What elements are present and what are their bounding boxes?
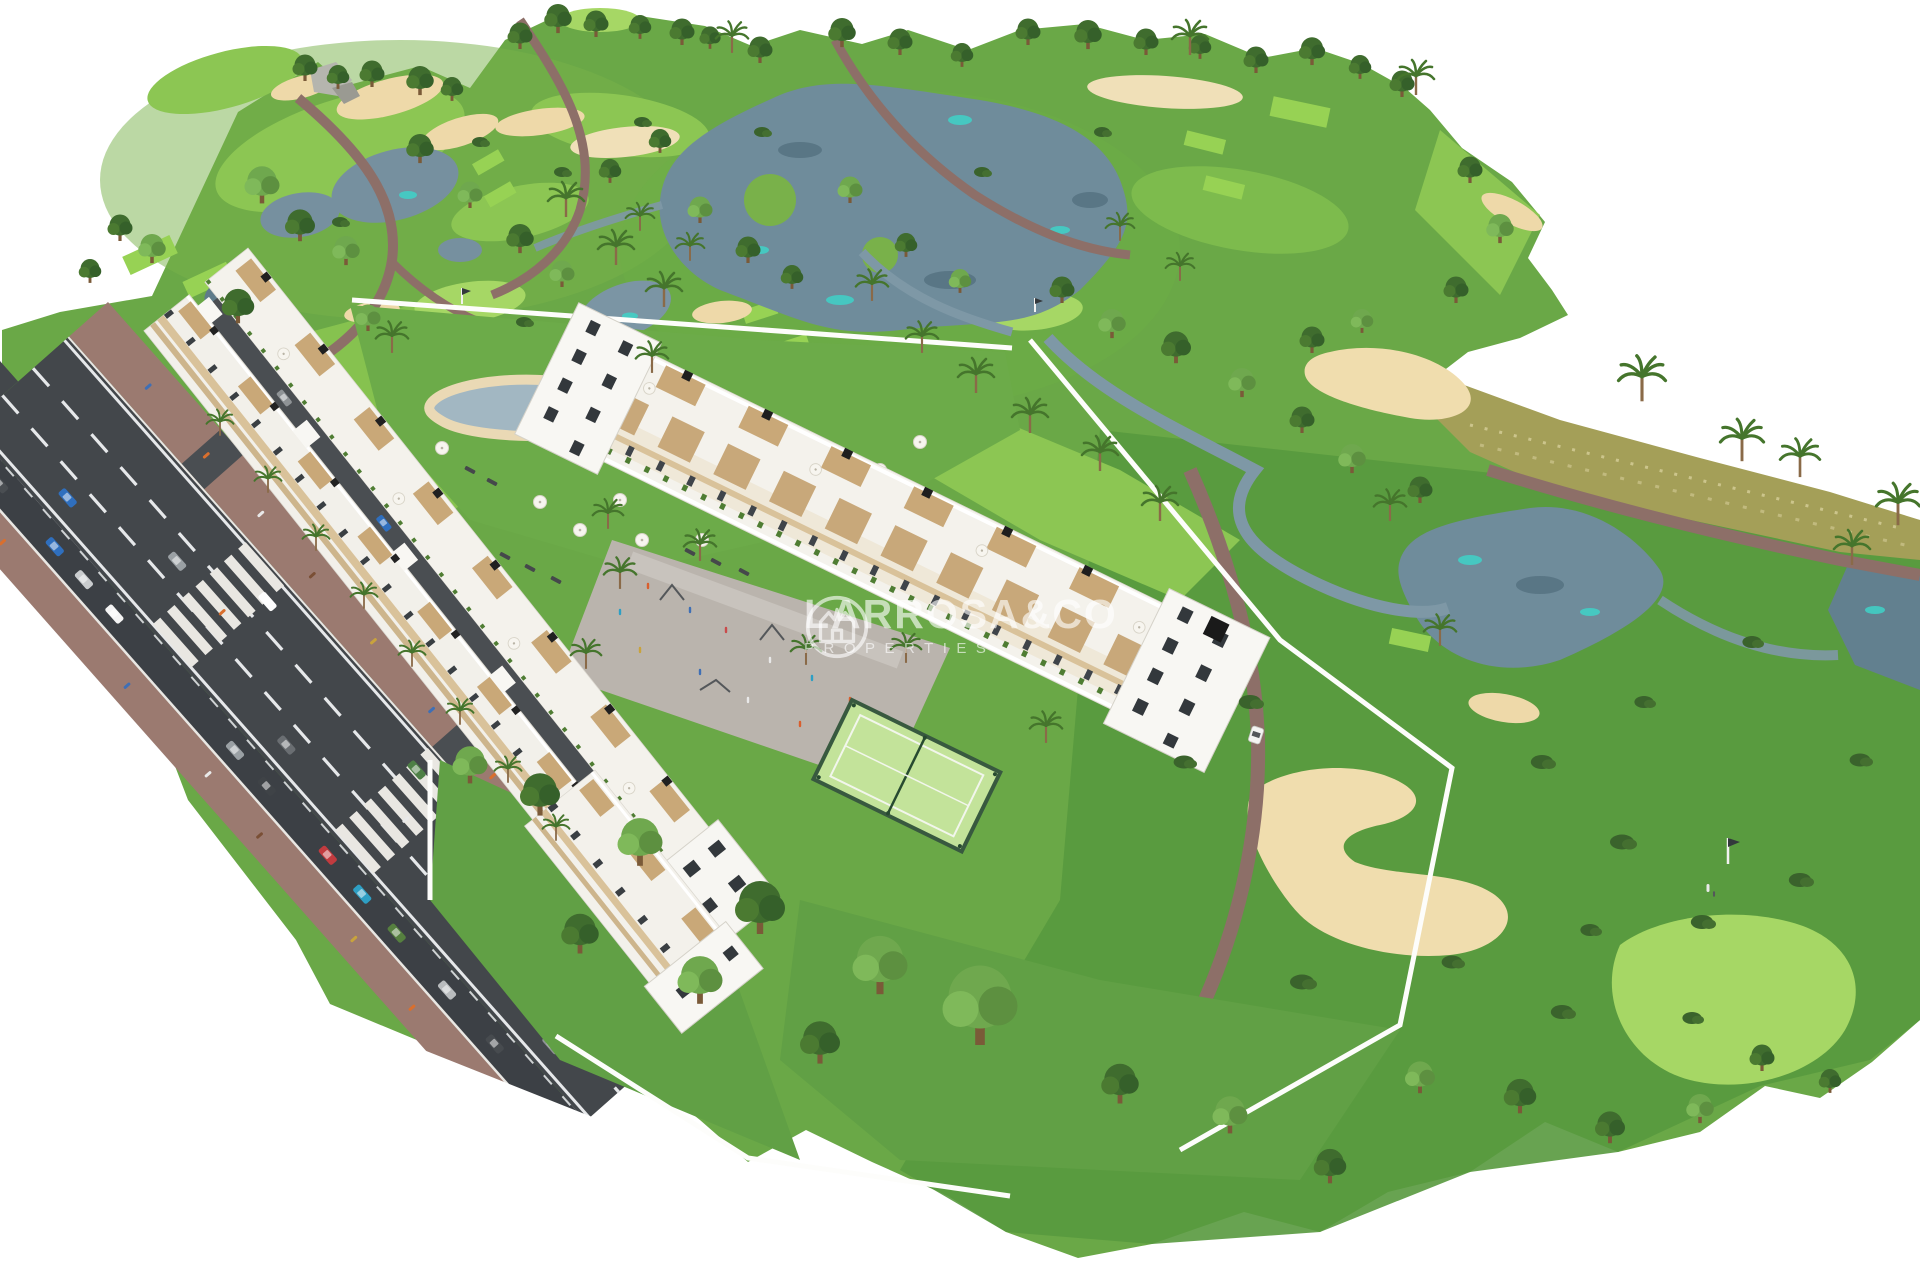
aerial-render [0, 0, 1920, 1280]
render-canvas: LARROSA&CO PROPERTIES [0, 0, 1920, 1280]
